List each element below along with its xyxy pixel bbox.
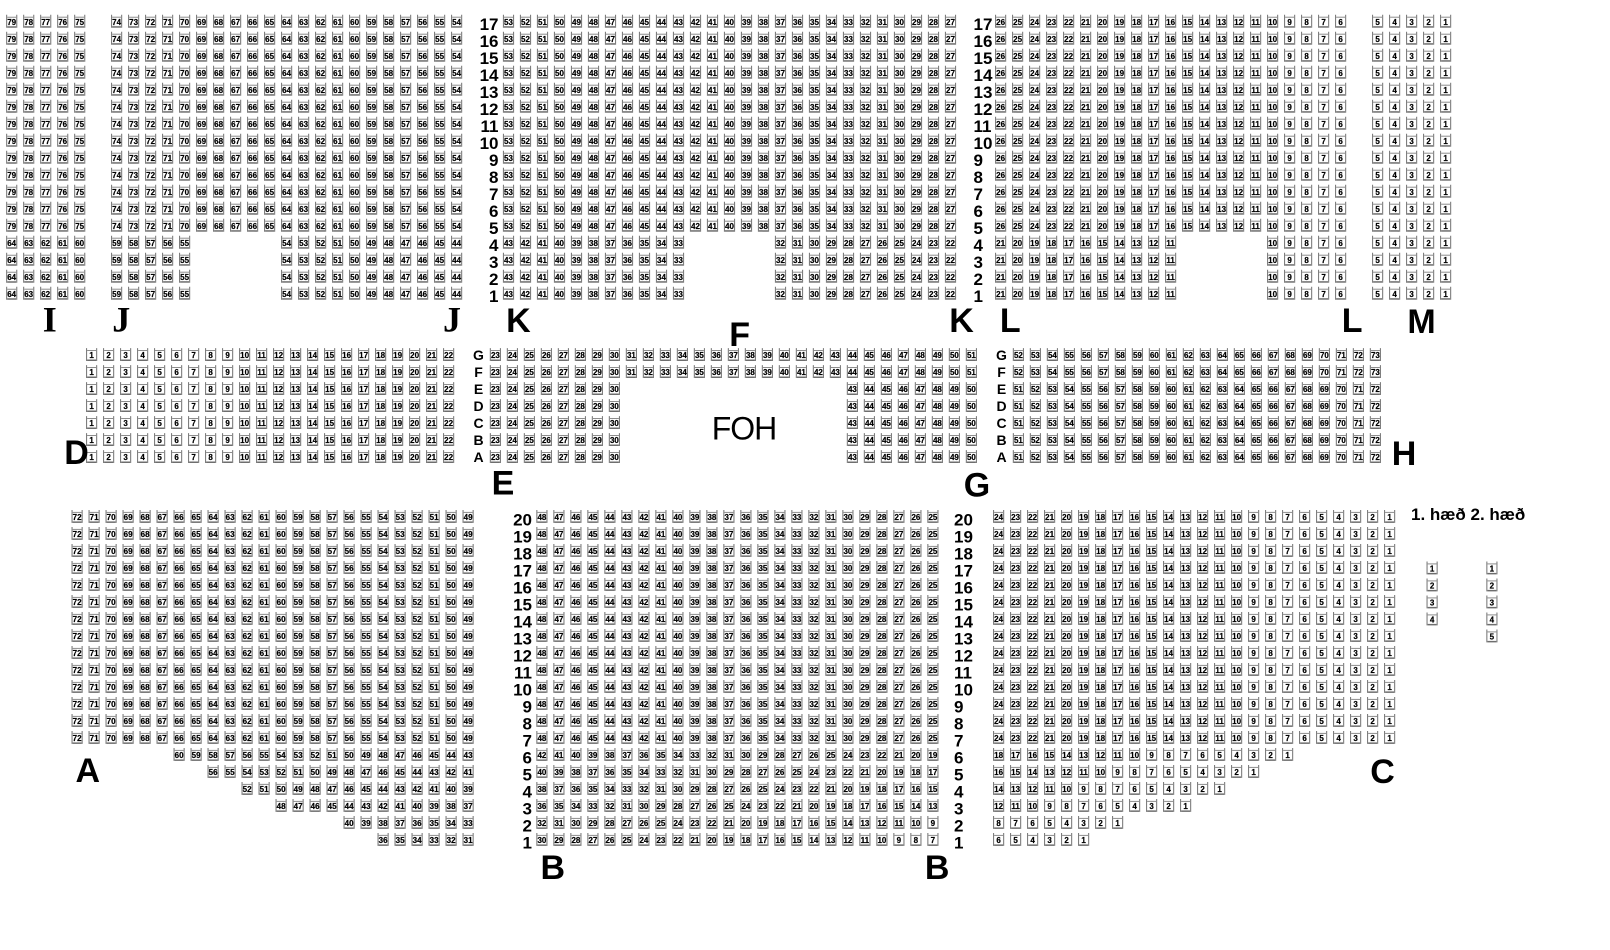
svg-text:72: 72 xyxy=(146,154,155,163)
svg-text:57: 57 xyxy=(401,52,410,61)
svg-text:64: 64 xyxy=(7,256,16,265)
svg-text:2: 2 xyxy=(1370,632,1375,641)
svg-text:2: 2 xyxy=(1426,86,1431,95)
svg-text:70: 70 xyxy=(180,188,189,197)
svg-text:15: 15 xyxy=(1183,86,1192,95)
svg-text:59: 59 xyxy=(1150,453,1159,462)
svg-text:36: 36 xyxy=(623,290,632,299)
svg-text:3: 3 xyxy=(1490,599,1495,608)
svg-text:39: 39 xyxy=(690,530,699,539)
svg-text:79: 79 xyxy=(7,86,16,95)
svg-text:37: 37 xyxy=(724,513,733,522)
svg-text:17: 17 xyxy=(1113,649,1122,658)
svg-text:5: 5 xyxy=(1319,598,1324,607)
svg-text:47: 47 xyxy=(554,581,563,590)
svg-text:37: 37 xyxy=(724,632,733,641)
svg-text:59: 59 xyxy=(112,239,121,248)
svg-text:36: 36 xyxy=(571,785,580,794)
svg-text:65: 65 xyxy=(1235,351,1244,360)
svg-text:71: 71 xyxy=(163,52,172,61)
svg-text:59: 59 xyxy=(294,547,303,556)
svg-text:12: 12 xyxy=(1234,188,1243,197)
svg-text:75: 75 xyxy=(75,222,84,231)
svg-text:46: 46 xyxy=(623,103,632,112)
svg-text:3: 3 xyxy=(1183,785,1188,794)
svg-text:58: 58 xyxy=(311,564,320,573)
svg-text:23: 23 xyxy=(1011,598,1020,607)
svg-text:5: 5 xyxy=(1375,18,1380,27)
svg-text:19: 19 xyxy=(1115,188,1124,197)
svg-text:53: 53 xyxy=(504,171,513,180)
svg-text:25: 25 xyxy=(928,598,937,607)
svg-text:68: 68 xyxy=(1286,351,1295,360)
svg-text:65: 65 xyxy=(1252,402,1261,411)
svg-text:72: 72 xyxy=(146,171,155,180)
svg-text:61: 61 xyxy=(1167,368,1176,377)
svg-text:5: 5 xyxy=(1319,564,1324,573)
svg-text:6: 6 xyxy=(1338,256,1343,265)
svg-text:34: 34 xyxy=(775,666,784,675)
svg-text:25: 25 xyxy=(1013,86,1022,95)
svg-text:76: 76 xyxy=(58,86,67,95)
svg-text:1: 1 xyxy=(1387,734,1392,743)
svg-text:42: 42 xyxy=(691,222,700,231)
svg-text:4: 4 xyxy=(1336,513,1341,522)
svg-text:37: 37 xyxy=(776,222,785,231)
svg-text:52: 52 xyxy=(413,513,422,522)
svg-text:11: 11 xyxy=(1251,154,1260,163)
svg-text:2: 2 xyxy=(1098,819,1103,828)
svg-text:22: 22 xyxy=(1028,717,1037,726)
svg-text:44: 44 xyxy=(657,69,666,78)
svg-text:16: 16 xyxy=(1166,137,1175,146)
svg-text:70: 70 xyxy=(107,615,116,624)
svg-text:60: 60 xyxy=(1167,436,1176,445)
svg-text:34: 34 xyxy=(657,273,666,282)
svg-text:35: 35 xyxy=(758,666,767,675)
svg-text:73: 73 xyxy=(129,52,138,61)
svg-text:37: 37 xyxy=(776,137,785,146)
svg-text:24: 24 xyxy=(508,436,517,445)
svg-text:32: 32 xyxy=(673,768,682,777)
svg-text:39: 39 xyxy=(742,188,751,197)
svg-text:70: 70 xyxy=(107,513,116,522)
svg-text:60: 60 xyxy=(277,513,286,522)
svg-text:26: 26 xyxy=(911,581,920,590)
svg-text:14: 14 xyxy=(308,453,317,462)
svg-text:7: 7 xyxy=(1321,120,1326,129)
svg-text:31: 31 xyxy=(878,171,887,180)
svg-text:56: 56 xyxy=(418,171,427,180)
svg-text:2: 2 xyxy=(1426,222,1431,231)
svg-text:14: 14 xyxy=(1164,666,1173,675)
svg-text:74: 74 xyxy=(112,86,121,95)
svg-text:65: 65 xyxy=(192,547,201,556)
svg-text:43: 43 xyxy=(674,137,683,146)
svg-text:56: 56 xyxy=(1099,419,1108,428)
svg-text:9: 9 xyxy=(1251,581,1256,590)
svg-text:3: 3 xyxy=(1409,256,1414,265)
svg-text:68: 68 xyxy=(141,513,150,522)
svg-text:10: 10 xyxy=(1232,615,1241,624)
svg-text:66: 66 xyxy=(175,717,184,726)
svg-text:1: 1 xyxy=(1285,751,1290,760)
svg-text:11: 11 xyxy=(1045,785,1054,794)
svg-text:27: 27 xyxy=(861,273,870,282)
svg-text:43: 43 xyxy=(622,717,631,726)
svg-text:8: 8 xyxy=(1268,547,1273,556)
svg-text:71: 71 xyxy=(163,69,172,78)
svg-text:48: 48 xyxy=(589,171,598,180)
svg-text:5: 5 xyxy=(1375,35,1380,44)
svg-text:61: 61 xyxy=(1167,351,1176,360)
svg-text:46: 46 xyxy=(623,188,632,197)
svg-text:63: 63 xyxy=(299,137,308,146)
svg-text:60: 60 xyxy=(277,564,286,573)
svg-text:9: 9 xyxy=(225,419,230,428)
svg-text:46: 46 xyxy=(418,256,427,265)
svg-text:69: 69 xyxy=(1320,385,1329,394)
svg-text:76: 76 xyxy=(58,154,67,163)
svg-text:8: 8 xyxy=(1268,615,1273,624)
svg-text:17: 17 xyxy=(1064,290,1073,299)
svg-text:12: 12 xyxy=(877,819,886,828)
svg-text:38: 38 xyxy=(447,802,456,811)
svg-text:42: 42 xyxy=(691,103,700,112)
svg-text:47: 47 xyxy=(554,547,563,556)
svg-text:48: 48 xyxy=(384,239,393,248)
svg-text:62: 62 xyxy=(316,35,325,44)
svg-text:57: 57 xyxy=(328,683,337,692)
svg-text:26: 26 xyxy=(639,819,648,828)
svg-text:60: 60 xyxy=(1167,419,1176,428)
svg-text:66: 66 xyxy=(248,222,257,231)
svg-text:20: 20 xyxy=(1098,103,1107,112)
svg-text:58: 58 xyxy=(311,615,320,624)
svg-text:29: 29 xyxy=(860,632,869,641)
svg-text:26: 26 xyxy=(996,205,1005,214)
svg-text:20: 20 xyxy=(1062,530,1071,539)
svg-text:2: 2 xyxy=(1370,649,1375,658)
svg-text:60: 60 xyxy=(277,598,286,607)
svg-text:70: 70 xyxy=(1337,385,1346,394)
svg-text:25: 25 xyxy=(1013,137,1022,146)
svg-text:12: 12 xyxy=(1234,86,1243,95)
svg-text:6: 6 xyxy=(174,402,179,411)
svg-text:C: C xyxy=(1370,753,1395,791)
svg-text:30: 30 xyxy=(843,683,852,692)
svg-text:50: 50 xyxy=(555,188,564,197)
svg-text:27: 27 xyxy=(559,402,568,411)
svg-text:30: 30 xyxy=(843,547,852,556)
svg-text:58: 58 xyxy=(311,632,320,641)
svg-text:30: 30 xyxy=(895,222,904,231)
svg-text:10: 10 xyxy=(240,453,249,462)
svg-text:24: 24 xyxy=(994,717,1003,726)
svg-text:73: 73 xyxy=(1371,368,1380,377)
svg-text:31: 31 xyxy=(627,368,636,377)
svg-text:29: 29 xyxy=(912,222,921,231)
svg-text:7: 7 xyxy=(1285,717,1290,726)
svg-text:55: 55 xyxy=(362,649,371,658)
svg-text:16: 16 xyxy=(342,436,351,445)
svg-text:50: 50 xyxy=(555,222,564,231)
svg-text:28: 28 xyxy=(673,802,682,811)
svg-text:5: 5 xyxy=(1375,290,1380,299)
svg-text:21: 21 xyxy=(1081,188,1090,197)
svg-text:6: 6 xyxy=(1302,598,1307,607)
svg-text:71: 71 xyxy=(90,615,99,624)
svg-text:51: 51 xyxy=(538,52,547,61)
svg-text:64: 64 xyxy=(282,188,291,197)
svg-text:37: 37 xyxy=(776,154,785,163)
svg-text:4: 4 xyxy=(1336,598,1341,607)
svg-text:9: 9 xyxy=(1251,615,1256,624)
svg-text:61: 61 xyxy=(260,700,269,709)
svg-text:42: 42 xyxy=(639,547,648,556)
svg-text:30: 30 xyxy=(810,239,819,248)
svg-text:22: 22 xyxy=(1064,35,1073,44)
svg-text:68: 68 xyxy=(1303,453,1312,462)
svg-text:15: 15 xyxy=(826,819,835,828)
svg-text:25: 25 xyxy=(1013,154,1022,163)
svg-text:46: 46 xyxy=(623,222,632,231)
svg-text:11: 11 xyxy=(1166,239,1175,248)
svg-text:38: 38 xyxy=(707,615,716,624)
svg-text:6: 6 xyxy=(1338,86,1343,95)
svg-text:45: 45 xyxy=(640,120,649,129)
svg-text:22: 22 xyxy=(1028,683,1037,692)
svg-text:46: 46 xyxy=(623,69,632,78)
svg-text:4: 4 xyxy=(1392,256,1397,265)
svg-text:17: 17 xyxy=(1113,700,1122,709)
svg-text:12: 12 xyxy=(1234,52,1243,61)
svg-text:18: 18 xyxy=(1096,632,1105,641)
svg-text:30: 30 xyxy=(610,385,619,394)
svg-text:72: 72 xyxy=(146,120,155,129)
svg-text:61: 61 xyxy=(260,717,269,726)
svg-text:62: 62 xyxy=(316,171,325,180)
svg-text:49: 49 xyxy=(362,751,371,760)
svg-text:8: 8 xyxy=(1098,785,1103,794)
svg-text:36: 36 xyxy=(712,351,721,360)
svg-text:17: 17 xyxy=(1064,256,1073,265)
svg-text:21: 21 xyxy=(1045,615,1054,624)
svg-text:53: 53 xyxy=(396,700,405,709)
svg-text:42: 42 xyxy=(691,120,700,129)
svg-text:61: 61 xyxy=(260,683,269,692)
svg-text:18: 18 xyxy=(911,768,920,777)
svg-text:62: 62 xyxy=(243,530,252,539)
svg-text:61: 61 xyxy=(260,615,269,624)
svg-text:33: 33 xyxy=(844,154,853,163)
svg-text:29: 29 xyxy=(690,785,699,794)
svg-text:38: 38 xyxy=(707,734,716,743)
svg-text:43: 43 xyxy=(848,453,857,462)
svg-text:10: 10 xyxy=(1268,205,1277,214)
svg-text:75: 75 xyxy=(75,69,84,78)
svg-text:25: 25 xyxy=(826,751,835,760)
svg-text:48: 48 xyxy=(537,598,546,607)
svg-text:65: 65 xyxy=(192,581,201,590)
svg-text:26: 26 xyxy=(542,368,551,377)
svg-text:48: 48 xyxy=(589,69,598,78)
svg-text:55: 55 xyxy=(362,547,371,556)
svg-text:49: 49 xyxy=(464,564,473,573)
svg-text:5: 5 xyxy=(1319,615,1324,624)
svg-text:42: 42 xyxy=(691,35,700,44)
svg-text:39: 39 xyxy=(690,649,699,658)
svg-text:57: 57 xyxy=(401,69,410,78)
svg-text:13: 13 xyxy=(291,419,300,428)
svg-text:15: 15 xyxy=(1045,751,1054,760)
svg-text:65: 65 xyxy=(265,154,274,163)
svg-text:54: 54 xyxy=(452,52,461,61)
svg-text:43: 43 xyxy=(674,86,683,95)
svg-text:16: 16 xyxy=(342,385,351,394)
svg-text:13: 13 xyxy=(1132,256,1141,265)
svg-text:60: 60 xyxy=(350,205,359,214)
svg-text:23: 23 xyxy=(1011,649,1020,658)
svg-text:56: 56 xyxy=(418,52,427,61)
svg-text:34: 34 xyxy=(827,154,836,163)
svg-text:15: 15 xyxy=(928,785,937,794)
svg-text:69: 69 xyxy=(197,171,206,180)
svg-text:60: 60 xyxy=(350,35,359,44)
svg-text:41: 41 xyxy=(708,120,717,129)
svg-text:43: 43 xyxy=(622,598,631,607)
svg-text:79: 79 xyxy=(7,18,16,27)
svg-text:31: 31 xyxy=(826,683,835,692)
svg-text:21: 21 xyxy=(826,785,835,794)
svg-text:48: 48 xyxy=(916,351,925,360)
svg-text:13: 13 xyxy=(1217,18,1226,27)
svg-text:D: D xyxy=(996,398,1006,414)
svg-text:28: 28 xyxy=(929,35,938,44)
svg-text:48: 48 xyxy=(589,103,598,112)
svg-text:32: 32 xyxy=(861,69,870,78)
svg-text:52: 52 xyxy=(521,86,530,95)
svg-text:61: 61 xyxy=(333,205,342,214)
svg-text:18: 18 xyxy=(1047,273,1056,282)
svg-text:48: 48 xyxy=(345,768,354,777)
svg-text:9: 9 xyxy=(1287,18,1292,27)
svg-text:20: 20 xyxy=(1062,666,1071,675)
svg-text:2: 2 xyxy=(1200,785,1205,794)
svg-text:27: 27 xyxy=(894,734,903,743)
svg-text:54: 54 xyxy=(1048,368,1057,377)
svg-text:23: 23 xyxy=(1047,188,1056,197)
svg-text:13: 13 xyxy=(291,436,300,445)
svg-text:6: 6 xyxy=(1302,683,1307,692)
svg-text:48: 48 xyxy=(537,734,546,743)
svg-text:26: 26 xyxy=(775,768,784,777)
svg-text:49: 49 xyxy=(572,205,581,214)
svg-text:65: 65 xyxy=(265,137,274,146)
svg-text:26: 26 xyxy=(911,598,920,607)
svg-text:2: 2 xyxy=(1426,171,1431,180)
svg-text:18: 18 xyxy=(376,368,385,377)
svg-text:50: 50 xyxy=(345,751,354,760)
svg-text:55: 55 xyxy=(435,52,444,61)
svg-text:64: 64 xyxy=(7,239,16,248)
svg-text:25: 25 xyxy=(928,683,937,692)
svg-text:38: 38 xyxy=(707,666,716,675)
svg-text:35: 35 xyxy=(695,351,704,360)
svg-text:27: 27 xyxy=(894,581,903,590)
svg-text:17: 17 xyxy=(1149,205,1158,214)
svg-text:46: 46 xyxy=(623,171,632,180)
svg-text:56: 56 xyxy=(345,666,354,675)
svg-text:50: 50 xyxy=(447,598,456,607)
svg-text:11: 11 xyxy=(1215,683,1224,692)
svg-text:2: 2 xyxy=(1426,137,1431,146)
svg-text:29: 29 xyxy=(827,239,836,248)
svg-text:72: 72 xyxy=(1354,351,1363,360)
svg-text:3: 3 xyxy=(1353,547,1358,556)
svg-text:8: 8 xyxy=(208,385,213,394)
svg-text:44: 44 xyxy=(605,717,614,726)
svg-text:37: 37 xyxy=(554,785,563,794)
svg-text:64: 64 xyxy=(1235,402,1244,411)
svg-text:26: 26 xyxy=(911,564,920,573)
svg-text:39: 39 xyxy=(690,700,699,709)
svg-text:54: 54 xyxy=(452,222,461,231)
svg-text:72: 72 xyxy=(73,632,82,641)
svg-text:65: 65 xyxy=(265,18,274,27)
svg-text:30: 30 xyxy=(810,256,819,265)
svg-text:1: 1 xyxy=(1251,768,1256,777)
svg-text:71: 71 xyxy=(1354,436,1363,445)
svg-text:10: 10 xyxy=(1232,513,1241,522)
svg-text:1: 1 xyxy=(89,419,94,428)
svg-text:14: 14 xyxy=(1164,649,1173,658)
svg-text:33: 33 xyxy=(844,35,853,44)
svg-text:13: 13 xyxy=(1181,717,1190,726)
svg-text:9: 9 xyxy=(225,351,230,360)
svg-text:66: 66 xyxy=(175,598,184,607)
svg-text:16: 16 xyxy=(1130,615,1139,624)
svg-text:16: 16 xyxy=(1130,632,1139,641)
svg-text:16: 16 xyxy=(1166,188,1175,197)
svg-text:72: 72 xyxy=(1371,453,1380,462)
svg-text:9: 9 xyxy=(1251,530,1256,539)
svg-text:54: 54 xyxy=(379,598,388,607)
svg-text:40: 40 xyxy=(447,785,456,794)
svg-text:29: 29 xyxy=(912,18,921,27)
svg-text:23: 23 xyxy=(1047,205,1056,214)
svg-text:4: 4 xyxy=(1392,69,1397,78)
svg-text:43: 43 xyxy=(622,581,631,590)
svg-text:56: 56 xyxy=(345,649,354,658)
svg-text:26: 26 xyxy=(996,69,1005,78)
svg-text:47: 47 xyxy=(606,188,615,197)
svg-text:14: 14 xyxy=(1200,120,1209,129)
svg-text:69: 69 xyxy=(124,513,133,522)
svg-text:13: 13 xyxy=(1217,35,1226,44)
svg-text:2: 2 xyxy=(1426,256,1431,265)
svg-text:13: 13 xyxy=(1217,205,1226,214)
svg-text:47: 47 xyxy=(554,632,563,641)
svg-text:11: 11 xyxy=(1113,751,1122,760)
svg-text:55: 55 xyxy=(362,632,371,641)
svg-text:34: 34 xyxy=(657,239,666,248)
svg-text:44: 44 xyxy=(345,802,354,811)
svg-text:76: 76 xyxy=(58,222,67,231)
svg-text:43: 43 xyxy=(848,419,857,428)
svg-text:20: 20 xyxy=(1098,222,1107,231)
svg-text:66: 66 xyxy=(248,35,257,44)
